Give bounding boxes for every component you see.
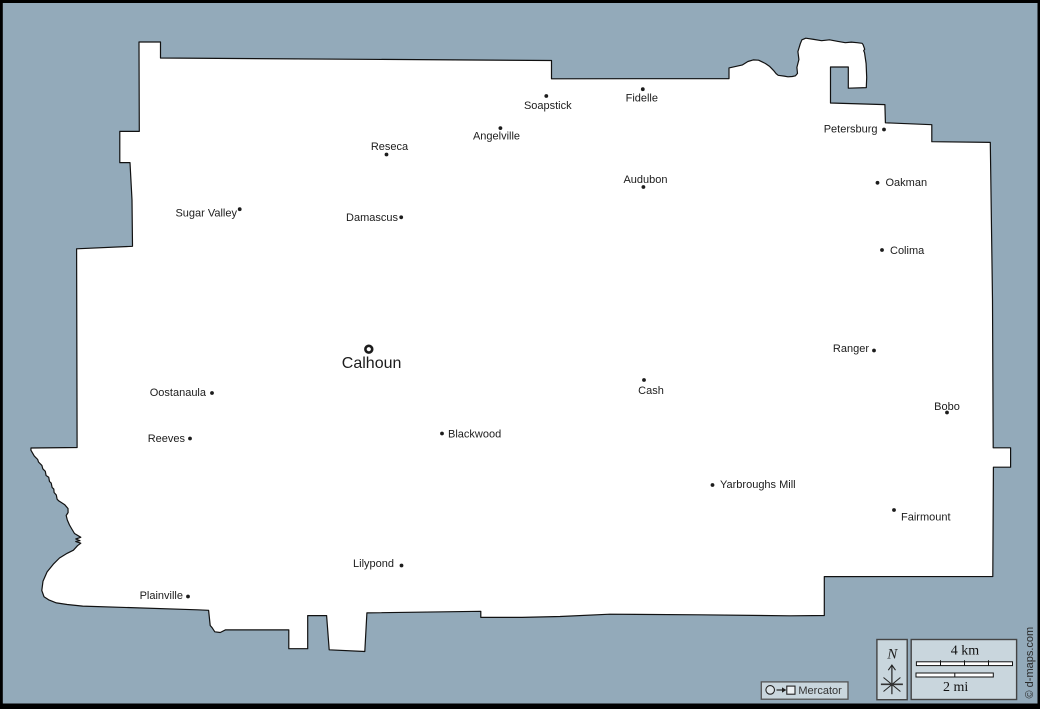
svg-text:Ranger: Ranger — [833, 343, 869, 355]
svg-text:Fidelle: Fidelle — [626, 93, 658, 105]
svg-text:Cash: Cash — [638, 385, 664, 397]
svg-text:Petersburg: Petersburg — [824, 124, 878, 136]
svg-text:Colima: Colima — [890, 245, 925, 257]
svg-text:Bobo: Bobo — [934, 401, 960, 413]
svg-text:Yarbroughs Mill: Yarbroughs Mill — [720, 479, 796, 491]
svg-text:Soapstick: Soapstick — [524, 100, 572, 112]
svg-text:Damascus: Damascus — [346, 212, 398, 224]
svg-text:Reeves: Reeves — [148, 433, 186, 445]
svg-text:Mercator: Mercator — [798, 685, 842, 697]
svg-text:Calhoun: Calhoun — [342, 355, 402, 372]
svg-text:Oakman: Oakman — [886, 177, 928, 189]
svg-text:Angelville: Angelville — [473, 131, 520, 143]
svg-text:Sugar Valley: Sugar Valley — [175, 208, 237, 220]
svg-text:4 km: 4 km — [951, 644, 980, 659]
svg-text:Reseca: Reseca — [371, 141, 409, 153]
svg-text:Blackwood: Blackwood — [448, 429, 501, 441]
svg-text:Lilypond: Lilypond — [353, 558, 394, 570]
svg-text:Audubon: Audubon — [623, 174, 667, 186]
svg-text:N: N — [886, 647, 898, 663]
svg-text:Oostanaula: Oostanaula — [150, 387, 207, 399]
svg-text:Fairmount: Fairmount — [901, 512, 951, 524]
svg-text:2 mi: 2 mi — [943, 680, 968, 695]
svg-text:© d-maps.com: © d-maps.com — [1024, 627, 1036, 699]
svg-text:Plainville: Plainville — [140, 590, 183, 602]
